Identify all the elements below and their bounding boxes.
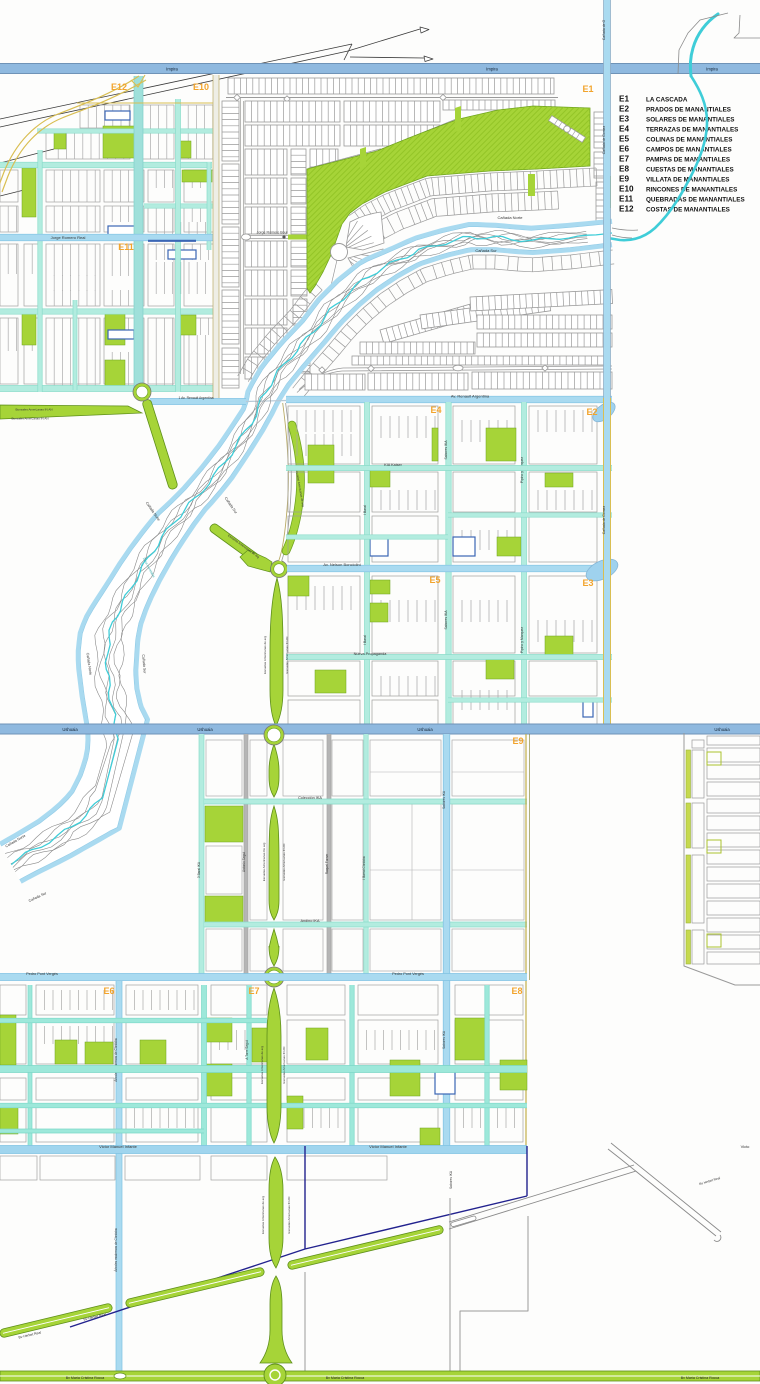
svg-text:Sabores IKA: Sabores IKA — [449, 1170, 453, 1189]
svg-text:E1: E1 — [619, 95, 629, 104]
svg-text:Impira: Impira — [706, 67, 718, 72]
svg-text:Árboles modernos de Córdoba: Árboles modernos de Córdoba — [114, 1038, 118, 1082]
svg-text:Ushuaia: Ushuaia — [417, 727, 433, 732]
svg-text:E2: E2 — [586, 407, 597, 417]
svg-text:Jorge Romero Real: Jorge Romero Real — [51, 235, 86, 240]
svg-text:E11: E11 — [619, 195, 634, 204]
svg-text:Jorge Romero Boul: Jorge Romero Boul — [257, 231, 288, 235]
svg-text:Bv Maria Cristina Rocca: Bv Maria Cristina Rocca — [681, 1376, 720, 1380]
svg-text:E4: E4 — [619, 125, 629, 134]
svg-text:Av. Renault Argentina: Av. Renault Argentina — [451, 394, 490, 399]
svg-text:E6: E6 — [619, 145, 629, 154]
svg-text:Bv Maria Cristina Rocca: Bv Maria Cristina Rocca — [326, 1376, 365, 1380]
svg-text:QUEBRADAS DE MANANTIALES: QUEBRADAS DE MANANTIALES — [646, 197, 745, 204]
svg-text:PRADOS DE MANANTIALES: PRADOS DE MANANTIALES — [646, 107, 731, 114]
svg-text:COSTAS DE MANANTIALES: COSTAS DE MANANTIALES — [646, 207, 730, 214]
svg-text:Sabores IKA: Sabores IKA — [442, 790, 446, 809]
svg-text:E4: E4 — [430, 405, 441, 415]
svg-text:Av. Nelson Bonciolini: Av. Nelson Bonciolini — [323, 562, 360, 567]
svg-text:Sabores IKA: Sabores IKA — [442, 1030, 446, 1049]
svg-text:Impira: Impira — [486, 67, 498, 72]
svg-text:Pipino y Marquez: Pipino y Marquez — [520, 627, 524, 654]
svg-text:Cañada de Gomez: Cañada de Gomez — [602, 505, 606, 534]
svg-text:Cañada Sur: Cañada Sur — [475, 248, 497, 253]
svg-text:E10: E10 — [193, 82, 209, 92]
svg-text:E3: E3 — [582, 578, 593, 588]
svg-text:E6: E6 — [103, 986, 114, 996]
svg-text:Bonzales AmerLanas IN AN: Bonzales AmerLanas IN AN — [11, 417, 48, 421]
svg-text:Cañada de G: Cañada de G — [602, 20, 606, 41]
svg-text:E5: E5 — [429, 575, 440, 585]
svg-text:Escuelas Americanas de arg: Escuelas Americanas de arg — [260, 1046, 264, 1084]
svg-text:Nueva Propaganda: Nueva Propaganda — [354, 652, 388, 656]
svg-text:RINCONES DE MANANTIALES: RINCONES DE MANANTIALES — [646, 187, 737, 194]
svg-text:Árboles modernos de Córdoba: Árboles modernos de Córdoba — [114, 1228, 118, 1272]
svg-text:Andino IKA: Andino IKA — [301, 919, 320, 923]
svg-text:3 Baral IKA: 3 Baral IKA — [197, 861, 201, 878]
svg-text:Victor Manuel Infante: Victor Manuel Infante — [99, 1144, 138, 1149]
svg-text:Bv Maria Cristina Rocca: Bv Maria Cristina Rocca — [66, 1376, 105, 1380]
svg-text:Escuelas Americanas De arg: Escuelas Americanas De arg — [262, 842, 266, 881]
svg-text:CUESTAS DE MANANTIALES: CUESTAS DE MANANTIALES — [646, 167, 734, 174]
svg-text:E2: E2 — [619, 105, 629, 114]
svg-text:Raquel Forner: Raquel Forner — [325, 853, 329, 874]
svg-text:E5: E5 — [619, 135, 629, 144]
svg-text:Colección IKA: Colección IKA — [298, 796, 322, 800]
svg-text:Ushuaia: Ushuaia — [197, 727, 213, 732]
svg-text:E9: E9 — [619, 175, 629, 184]
svg-text:Escuelas Americanas de arg: Escuelas Americanas de arg — [261, 1196, 265, 1234]
svg-text:LA CASCADA: LA CASCADA — [646, 97, 688, 104]
svg-text:Escuelas AmerLanas IN AN: Escuelas AmerLanas IN AN — [282, 844, 286, 881]
svg-text:Ushuaia: Ushuaia — [62, 727, 78, 732]
svg-text:E7: E7 — [248, 986, 259, 996]
svg-text:Cañada Norte: Cañada Norte — [498, 215, 524, 220]
svg-text:I Baral: I Baral — [363, 635, 367, 645]
svg-text:Bonzales AmerLanas IN AN: Bonzales AmerLanas IN AN — [15, 408, 52, 412]
svg-text:Escuelas AmerLanas IN AN: Escuelas AmerLanas IN AN — [285, 637, 289, 674]
svg-text:E8: E8 — [511, 986, 522, 996]
svg-text:E3: E3 — [619, 115, 629, 124]
svg-text:E9: E9 — [512, 736, 523, 746]
svg-text:E11: E11 — [118, 242, 134, 252]
svg-text:E1: E1 — [582, 84, 593, 94]
svg-text:I Barral Córdoba: I Barral Córdoba — [362, 856, 366, 880]
svg-text:Escuelas AmerLanas IN AN: Escuelas AmerLanas IN AN — [282, 1047, 286, 1084]
svg-text:Victo: Victo — [741, 1144, 751, 1149]
svg-text:E12: E12 — [619, 205, 634, 214]
svg-text:Cañada de Gomez: Cañada de Gomez — [602, 125, 606, 154]
svg-text:Pedro Pont Vergés: Pedro Pont Vergés — [26, 972, 58, 976]
svg-text:KIA Kaiser: KIA Kaiser — [384, 463, 402, 467]
svg-text:E8: E8 — [619, 165, 629, 174]
svg-text:A Torre Seguí: A Torre Seguí — [245, 1040, 249, 1059]
svg-text:I Baral: I Baral — [363, 505, 367, 515]
svg-text:SOLARES DE MANANTIALES: SOLARES DE MANANTIALES — [646, 117, 735, 124]
svg-text:PAMPAS DE MANANTIALES: PAMPAS DE MANANTIALES — [646, 157, 730, 164]
svg-text:Impira: Impira — [166, 67, 178, 72]
svg-text:Sabores IKA: Sabores IKA — [444, 610, 448, 630]
svg-text:TERRAZAS DE MANANTIALES: TERRAZAS DE MANANTIALES — [646, 127, 738, 134]
svg-text:Victor Manuel Infante: Victor Manuel Infante — [369, 1144, 408, 1149]
svg-text:E7: E7 — [619, 155, 629, 164]
svg-text:E10: E10 — [619, 185, 634, 194]
svg-text:Antonio Seguí: Antonio Seguí — [242, 852, 246, 872]
svg-text:Ushuaia: Ushuaia — [714, 727, 730, 732]
svg-text:Sabores IKA: Sabores IKA — [444, 440, 448, 460]
svg-text:Pedro Pont Vergés: Pedro Pont Vergés — [392, 972, 424, 976]
svg-text:Escuelas AmerLanas IN AN: Escuelas AmerLanas IN AN — [287, 1197, 291, 1234]
svg-text:Escuelas Americanas de arg: Escuelas Americanas de arg — [263, 636, 267, 674]
svg-text:E12: E12 — [111, 82, 127, 92]
svg-text:1 Av. Renault Argentina: 1 Av. Renault Argentina — [178, 396, 213, 400]
svg-text:COLINAS DE MANANTIALES: COLINAS DE MANANTIALES — [646, 137, 732, 144]
svg-text:CAMPOS DE MANANTIALES: CAMPOS DE MANANTIALES — [646, 147, 732, 154]
